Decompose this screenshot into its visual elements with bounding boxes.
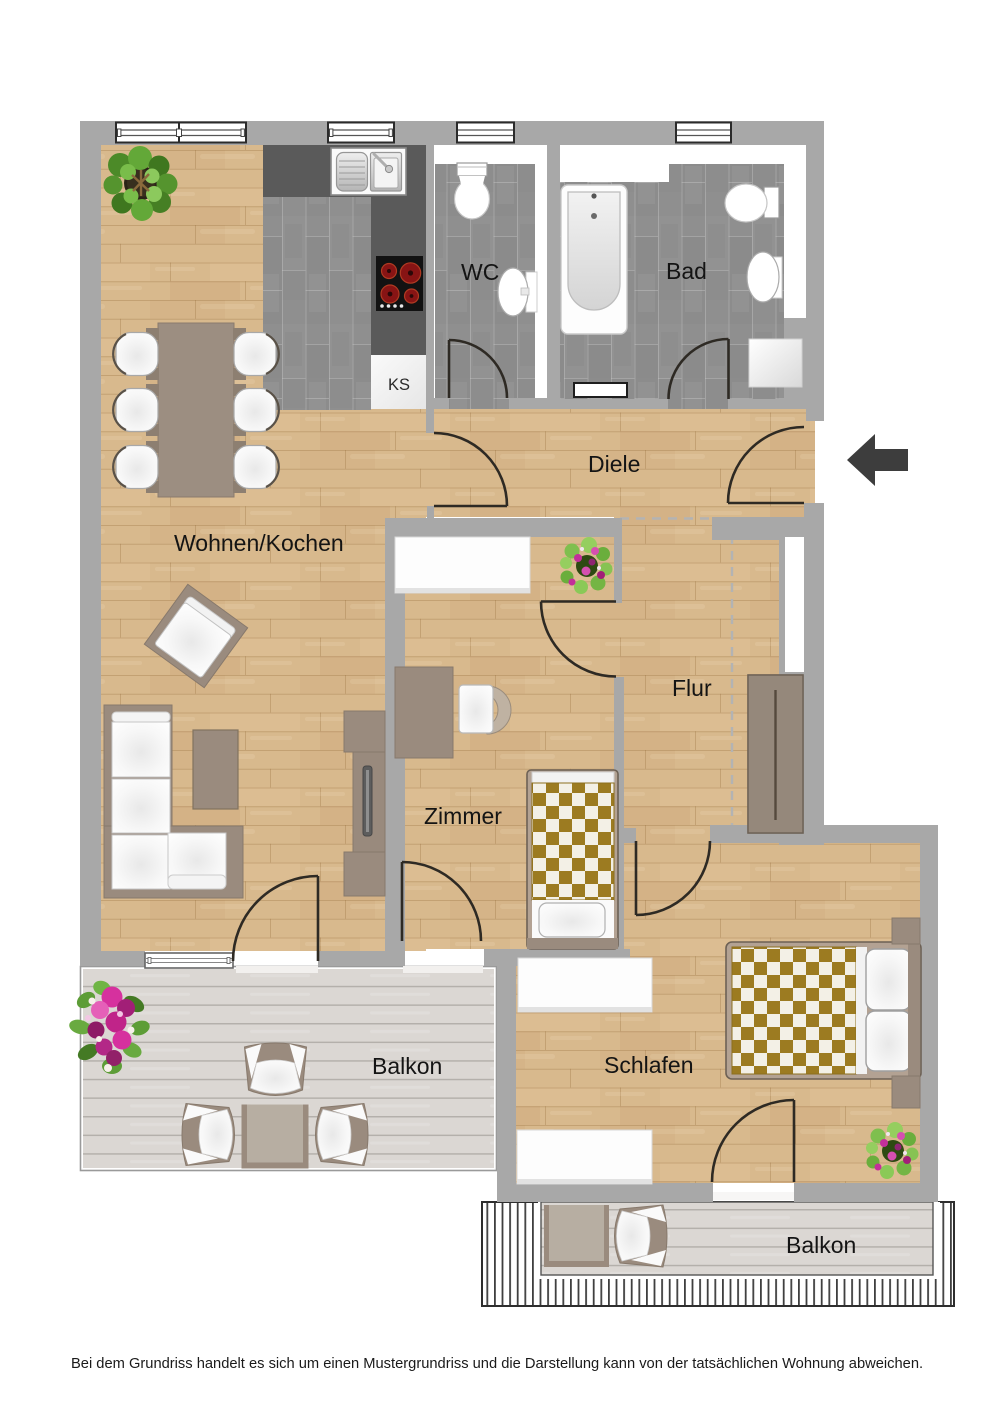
- svg-text:WC: WC: [461, 259, 499, 285]
- svg-text:Diele: Diele: [588, 451, 640, 477]
- svg-text:Schlafen: Schlafen: [604, 1052, 694, 1078]
- svg-text:Balkon: Balkon: [372, 1053, 442, 1079]
- svg-text:Bei dem Grundriss handelt es s: Bei dem Grundriss handelt es sich um ein…: [71, 1356, 923, 1372]
- svg-text:Balkon: Balkon: [786, 1232, 856, 1258]
- svg-text:Zimmer: Zimmer: [424, 803, 502, 829]
- svg-text:KS: KS: [388, 376, 410, 394]
- svg-text:Flur: Flur: [672, 675, 712, 701]
- svg-text:Wohnen/Kochen: Wohnen/Kochen: [174, 530, 344, 556]
- svg-text:Bad: Bad: [666, 258, 707, 284]
